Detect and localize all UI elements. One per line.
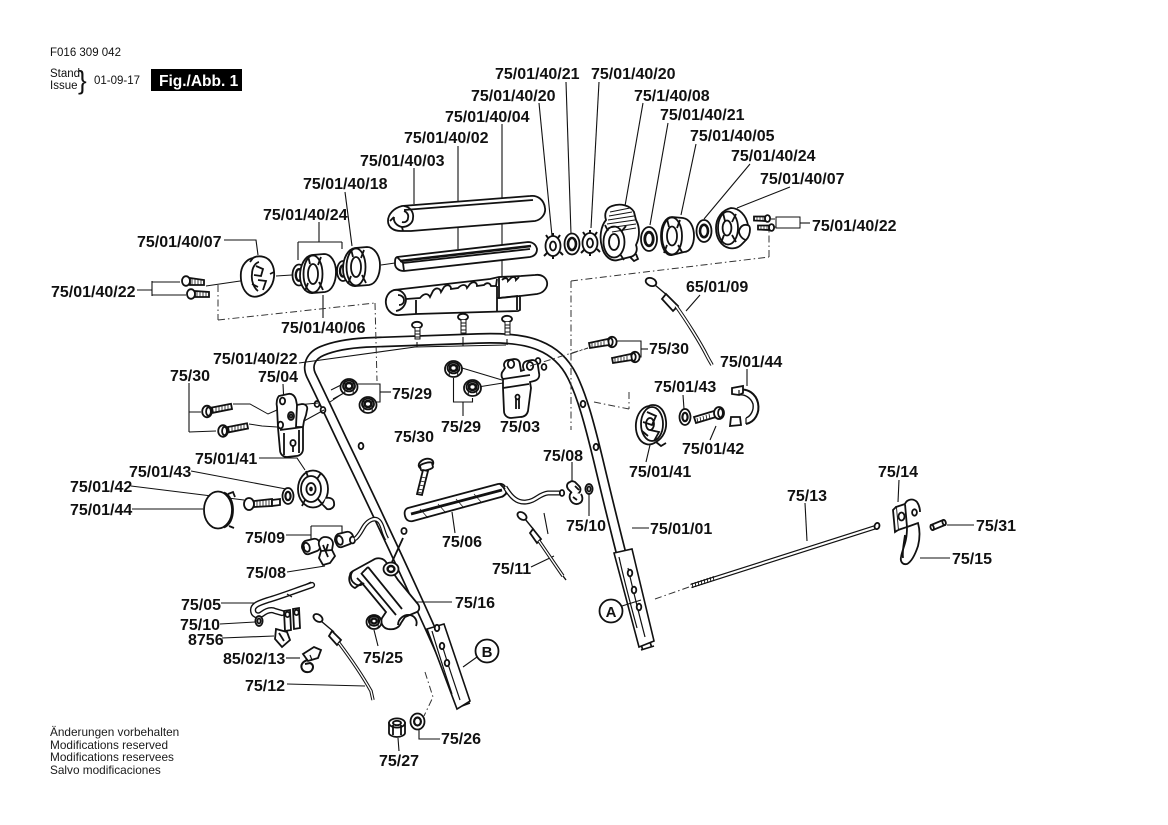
svg-text:75/30: 75/30 — [394, 429, 434, 446]
svg-text:75/14: 75/14 — [878, 464, 918, 481]
svg-text:75/01/40/20: 75/01/40/20 — [471, 88, 556, 105]
svg-text:75/01/40/24: 75/01/40/24 — [263, 207, 348, 224]
svg-text:75/13: 75/13 — [787, 488, 827, 505]
svg-text:75/01/41: 75/01/41 — [195, 451, 257, 468]
svg-text:75/03: 75/03 — [500, 419, 540, 436]
svg-text:75/01/40/07: 75/01/40/07 — [760, 171, 845, 188]
svg-text:75/01/40/02: 75/01/40/02 — [404, 130, 489, 147]
svg-text:85/02/13: 85/02/13 — [223, 651, 285, 668]
svg-text:75/01/40/21: 75/01/40/21 — [660, 107, 745, 124]
svg-text:75/30: 75/30 — [649, 341, 689, 358]
svg-text:75/01/40/22: 75/01/40/22 — [213, 351, 298, 368]
svg-text:Modifications reservees: Modifications reservees — [50, 750, 174, 764]
svg-text:75/29: 75/29 — [441, 419, 481, 436]
svg-text:75/01/44: 75/01/44 — [70, 502, 132, 519]
svg-text:75/01/40/22: 75/01/40/22 — [51, 284, 136, 301]
svg-text:A: A — [606, 604, 617, 621]
svg-text:75/01/40/21: 75/01/40/21 — [495, 66, 580, 83]
svg-text:75/30: 75/30 — [170, 368, 210, 385]
svg-text:75/01/42: 75/01/42 — [70, 479, 132, 496]
svg-text:Issue: Issue — [50, 80, 78, 92]
svg-text:}: } — [78, 65, 87, 95]
svg-text:75/12: 75/12 — [245, 678, 285, 695]
svg-text:75/01/40/07: 75/01/40/07 — [137, 234, 222, 251]
svg-text:75/09: 75/09 — [245, 530, 285, 547]
svg-text:75/25: 75/25 — [363, 650, 403, 667]
svg-text:65/01/09: 65/01/09 — [686, 279, 748, 296]
svg-text:B: B — [482, 644, 493, 661]
svg-text:75/08: 75/08 — [246, 565, 286, 582]
svg-text:75/04: 75/04 — [258, 369, 298, 386]
svg-text:75/01/40/03: 75/01/40/03 — [360, 153, 445, 170]
svg-text:75/05: 75/05 — [181, 597, 221, 614]
svg-text:75/01/42: 75/01/42 — [682, 441, 744, 458]
svg-text:75/16: 75/16 — [455, 595, 495, 612]
svg-text:Änderungen vorbehalten: Änderungen vorbehalten — [50, 725, 179, 739]
svg-text:75/01/40/20: 75/01/40/20 — [591, 66, 676, 83]
svg-text:75/11: 75/11 — [492, 561, 531, 578]
svg-text:75/01/40/24: 75/01/40/24 — [731, 148, 816, 165]
svg-text:75/31: 75/31 — [976, 518, 1016, 535]
svg-text:75/27: 75/27 — [379, 753, 419, 770]
svg-text:75/01/40/04: 75/01/40/04 — [445, 109, 530, 126]
svg-text:75/10: 75/10 — [566, 518, 606, 535]
svg-text:75/01/44: 75/01/44 — [720, 354, 782, 371]
svg-text:Salvo modificaciones: Salvo modificaciones — [50, 763, 161, 777]
svg-text:75/1/40/08: 75/1/40/08 — [634, 88, 710, 105]
svg-text:75/06: 75/06 — [442, 534, 482, 551]
svg-text:75/01/40/22: 75/01/40/22 — [812, 218, 897, 235]
svg-text:75/26: 75/26 — [441, 731, 481, 748]
svg-text:F016 309 042: F016 309 042 — [50, 47, 121, 59]
svg-text:75/01/43: 75/01/43 — [654, 379, 716, 396]
svg-text:75/01/40/06: 75/01/40/06 — [281, 320, 366, 337]
svg-text:75/01/43: 75/01/43 — [129, 464, 191, 481]
svg-text:75/29: 75/29 — [392, 386, 432, 403]
svg-text:75/01/41: 75/01/41 — [629, 464, 691, 481]
svg-text:8756: 8756 — [188, 632, 224, 649]
svg-text:Fig./Abb. 1: Fig./Abb. 1 — [159, 73, 239, 90]
svg-text:01-09-17: 01-09-17 — [94, 75, 140, 87]
svg-text:75/01/40/05: 75/01/40/05 — [690, 128, 775, 145]
svg-text:75/01/40/18: 75/01/40/18 — [303, 176, 388, 193]
svg-text:75/01/01: 75/01/01 — [650, 521, 712, 538]
svg-text:75/08: 75/08 — [543, 448, 583, 465]
svg-text:75/15: 75/15 — [952, 551, 992, 568]
svg-text:Stand: Stand — [50, 68, 80, 80]
